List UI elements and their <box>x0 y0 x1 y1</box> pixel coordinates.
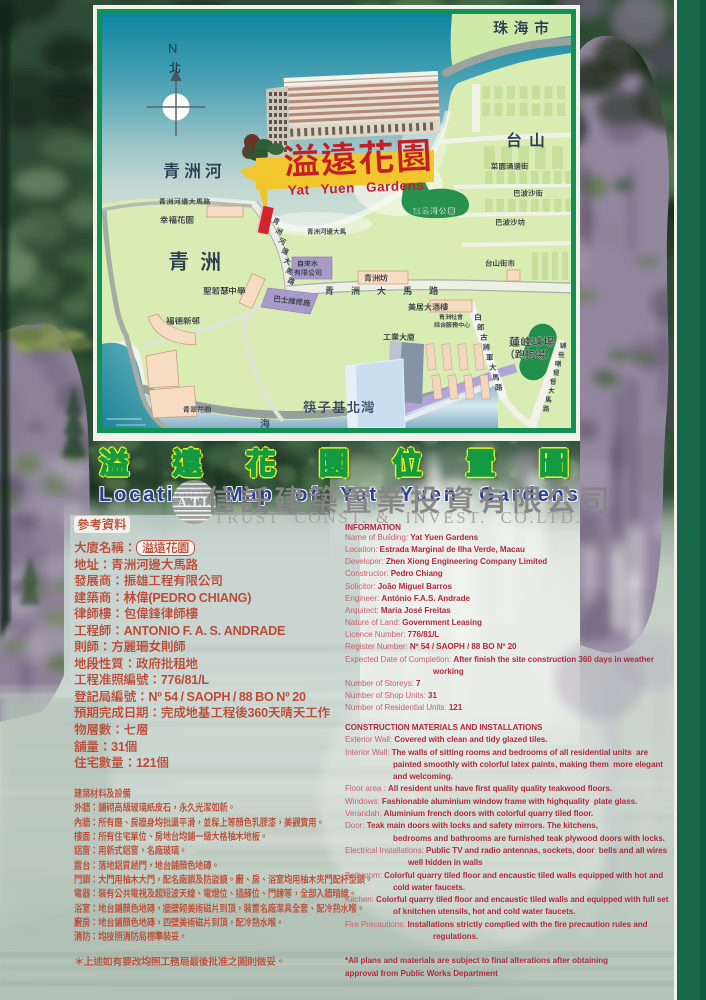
svg-text:台山街市: 台山街市 <box>485 258 515 269</box>
svg-text:青洲坊: 青洲坊 <box>364 273 388 284</box>
svg-text:海: 海 <box>260 415 270 428</box>
svg-text:工業大廈: 工業大廈 <box>382 332 415 343</box>
svg-text:綜合服務中心: 綜合服務中心 <box>433 320 471 329</box>
svg-text:珠海市: 珠海市 <box>493 17 555 38</box>
svg-text:青洲河邊大馬: 青洲河邊大馬 <box>307 226 347 236</box>
svg-text:菜園涌邊街: 菜園涌邊街 <box>491 161 529 172</box>
svg-text:路: 路 <box>494 382 503 393</box>
svg-text:鴨涌河公園: 鴨涌河公園 <box>413 206 456 217</box>
svg-text:N: N <box>168 38 177 57</box>
svg-text:（跑狗場）: （跑狗場） <box>505 346 555 361</box>
svg-text:台山: 台山 <box>506 127 552 151</box>
svg-text:青洲河邊大馬路: 青洲河邊大馬路 <box>159 197 211 207</box>
svg-text:幸福花園: 幸福花園 <box>160 214 194 226</box>
svg-text:聖若瑟中學: 聖若瑟中學 <box>203 285 246 297</box>
svg-text:北: 北 <box>168 59 181 76</box>
svg-text:青洲河: 青洲河 <box>163 157 226 182</box>
svg-text:青洲大馬路: 青洲大馬路 <box>325 284 455 297</box>
svg-text:有限公司: 有限公司 <box>294 268 322 278</box>
svg-text:巴波沙坊: 巴波沙坊 <box>495 217 525 228</box>
svg-text:路: 路 <box>542 403 550 413</box>
svg-text:青洲: 青洲 <box>168 246 232 276</box>
svg-text:巴波沙街: 巴波沙街 <box>513 188 543 199</box>
svg-text:青翠花園: 青翠花園 <box>183 405 211 415</box>
svg-text:福德新邨: 福德新邨 <box>166 315 201 327</box>
svg-text:筷子基北灣: 筷子基北灣 <box>303 396 376 416</box>
